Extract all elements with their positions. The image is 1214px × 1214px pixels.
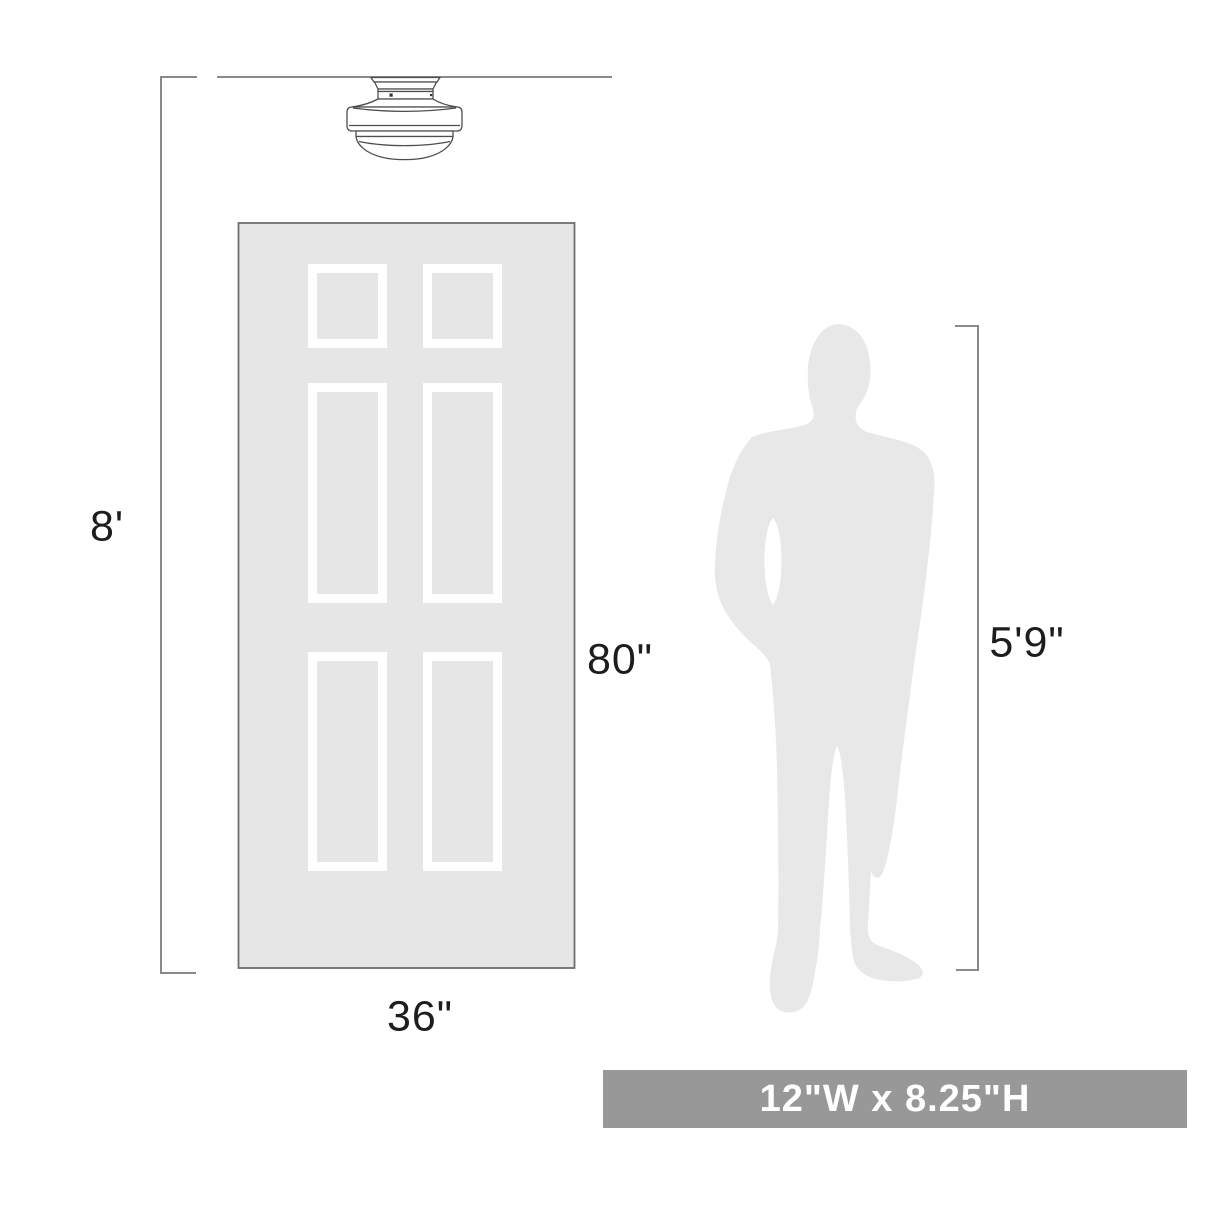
fixture-screw <box>390 94 393 97</box>
ceiling-light-icon <box>347 78 462 160</box>
ceiling-height-label: 8' <box>90 503 124 552</box>
ceiling-height-bracket <box>161 77 197 973</box>
person-height-bracket <box>955 326 978 970</box>
door-panel <box>423 383 502 603</box>
fixture-neck <box>378 92 433 100</box>
door-panel <box>308 264 387 348</box>
door-slab <box>239 223 575 968</box>
person-silhouette <box>715 324 935 1013</box>
product-size-banner: 12"W x 8.25"H <box>603 1070 1187 1128</box>
fixture-canopy <box>371 78 440 83</box>
door-panel <box>423 652 502 871</box>
door-width-label: 36" <box>387 993 453 1042</box>
door-height-label: 80" <box>587 636 653 685</box>
person-height-label: 5'9" <box>989 619 1064 668</box>
dimension-diagram: 8' 80" 36" 5'9" 12"W x 8.25"H <box>0 0 1214 1214</box>
fixture-step-ring <box>356 131 453 137</box>
door-panel <box>308 383 387 603</box>
fixture-screw <box>430 94 432 96</box>
door-panel <box>308 652 387 871</box>
door-panel <box>423 264 502 348</box>
diagram-artwork <box>0 0 1214 1214</box>
fixture-drum <box>347 107 462 131</box>
six-panel-door-illustration <box>239 223 575 968</box>
fixture-shoulder <box>352 99 457 107</box>
fixture-glass-dome <box>356 137 453 160</box>
